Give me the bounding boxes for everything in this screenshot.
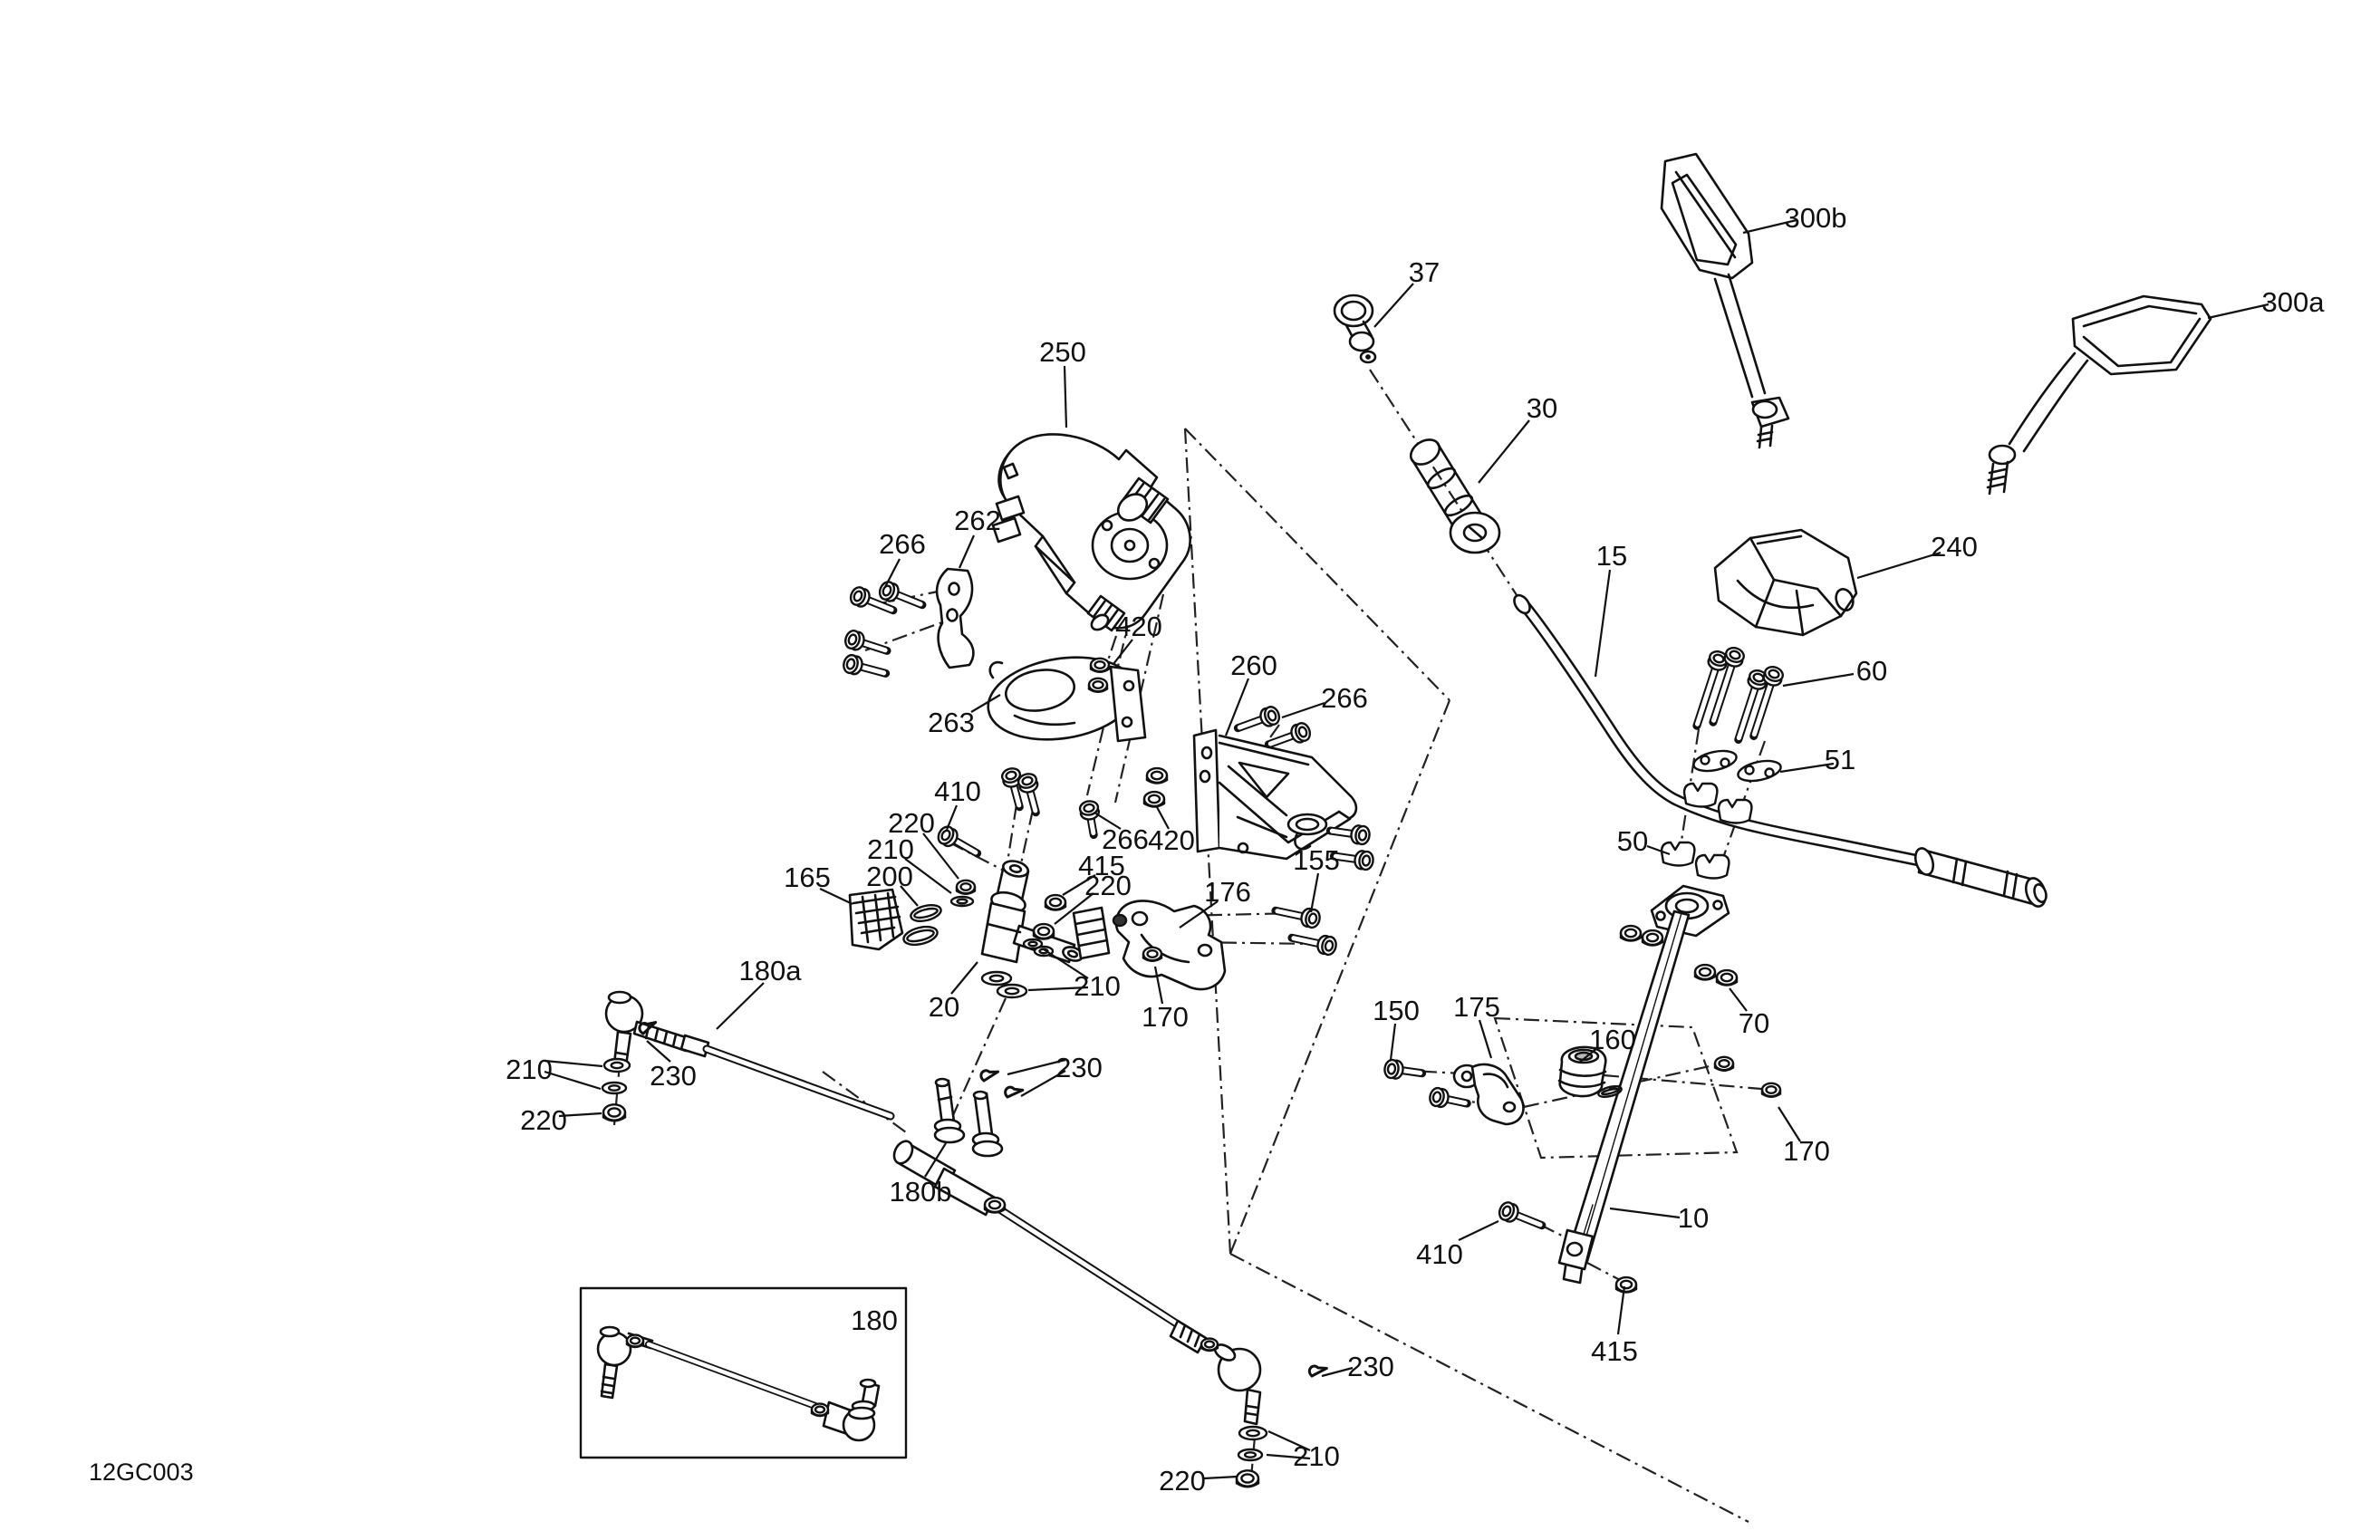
part-support-plate-263[interactable]: [982, 648, 1145, 750]
part-mirror-right-300a[interactable]: [1988, 296, 2211, 494]
leader-line-410b: [1459, 1221, 1498, 1240]
part-steering-support-260[interactable]: [1194, 730, 1356, 859]
steering-diagram-svg: 300b300a37301524060515025026626226342026…: [0, 0, 2380, 1540]
part-power-steering-unit-250[interactable]: [985, 420, 1190, 632]
washer-210[interactable]: [602, 1083, 626, 1093]
nut-rod[interactable]: [1201, 1339, 1218, 1351]
leader-line-220d: [1204, 1477, 1238, 1478]
part-mirror-left-300b[interactable]: [1662, 154, 1788, 448]
leader-line-210c: [544, 1061, 602, 1066]
callout-60[interactable]: 60: [1856, 655, 1887, 687]
part-clamp-half-176[interactable]: [1074, 908, 1109, 958]
callout-176[interactable]: 176: [1204, 876, 1251, 908]
bolt[interactable]: [1238, 705, 1281, 728]
nut-220[interactable]: [603, 1104, 625, 1121]
leader-line-410a: [947, 805, 957, 830]
leader-line-37: [1374, 284, 1413, 327]
callout-10[interactable]: 10: [1678, 1202, 1709, 1234]
leader-line-415b: [1618, 1286, 1624, 1334]
nut-420[interactable]: [1147, 768, 1167, 783]
nut-420[interactable]: [1091, 659, 1109, 672]
callout-263[interactable]: 263: [928, 707, 975, 738]
nut-70[interactable]: [1621, 926, 1641, 940]
parts-diagram-page: 300b300a37301524060515025026626226342026…: [0, 0, 2380, 1540]
nut-rod[interactable]: [627, 1335, 643, 1347]
callout-170a[interactable]: 170: [1142, 1001, 1189, 1033]
callout-210c[interactable]: 210: [506, 1054, 553, 1085]
nut-170[interactable]: [1762, 1083, 1780, 1097]
callout-410a[interactable]: 410: [934, 775, 981, 807]
callout-230b[interactable]: 230: [650, 1060, 697, 1092]
callout-175[interactable]: 175: [1453, 991, 1500, 1023]
callout-220c[interactable]: 220: [520, 1104, 567, 1136]
part-handlebar-grip-30[interactable]: [1406, 435, 1499, 553]
bolt[interactable]: [1292, 935, 1337, 957]
callout-250[interactable]: 250: [1039, 336, 1086, 368]
bolt[interactable]: [843, 629, 887, 651]
bolt[interactable]: [1334, 850, 1373, 871]
callout-37[interactable]: 37: [1409, 256, 1440, 288]
nut-small[interactable]: [1113, 915, 1126, 926]
leader-line-300a: [2208, 304, 2269, 318]
callout-260[interactable]: 260: [1230, 650, 1277, 681]
leader-line-155: [1311, 873, 1318, 912]
callout-266b[interactable]: 266: [1321, 682, 1368, 714]
diagram-code: 12GC003: [89, 1458, 194, 1486]
o-ring-200[interactable]: [910, 902, 943, 924]
callout-200[interactable]: 200: [866, 861, 913, 892]
washer-210[interactable]: [1239, 1427, 1267, 1439]
nut-415[interactable]: [1616, 1277, 1636, 1292]
callout-420b[interactable]: 420: [1148, 824, 1195, 856]
nut-415[interactable]: [1045, 895, 1065, 910]
callout-262[interactable]: 262: [954, 505, 1001, 536]
callout-410b[interactable]: 410: [1416, 1238, 1463, 1270]
leader-line-180a: [717, 983, 764, 1029]
callout-50[interactable]: 50: [1617, 825, 1648, 857]
callout-170b[interactable]: 170: [1783, 1135, 1830, 1167]
nut-420[interactable]: [1144, 792, 1164, 806]
part-support-bracket-262[interactable]: [937, 569, 973, 668]
part-steering-clamp-176[interactable]: [1116, 900, 1225, 989]
nut-420[interactable]: [1089, 679, 1107, 692]
nut-70[interactable]: [1715, 1057, 1733, 1071]
callout-30[interactable]: 30: [1527, 392, 1557, 424]
part-bar-end-cap-37[interactable]: [1335, 295, 1375, 362]
callout-230c[interactable]: 230: [1347, 1351, 1394, 1382]
leader-line-60: [1783, 674, 1854, 686]
part-handlebar-cover-240[interactable]: [1715, 530, 1856, 635]
bolt[interactable]: [1330, 824, 1370, 845]
callout-210b[interactable]: 210: [1074, 970, 1121, 1002]
callout-180[interactable]: 180: [851, 1304, 898, 1336]
washer-210[interactable]: [997, 985, 1026, 997]
handlebar-clamp-50[interactable]: [1696, 855, 1729, 879]
nut-70[interactable]: [1695, 965, 1715, 979]
callout-266c[interactable]: 266: [1102, 823, 1149, 855]
nut-70[interactable]: [1643, 930, 1662, 945]
bolt[interactable]: [1383, 1059, 1421, 1080]
washer-210[interactable]: [604, 1059, 630, 1072]
leader-line-420a: [1113, 640, 1132, 664]
bolt[interactable]: [1079, 800, 1100, 835]
leader-line-175: [1479, 1020, 1491, 1058]
nut-rod[interactable]: [812, 1404, 828, 1416]
callout-70[interactable]: 70: [1739, 1007, 1769, 1039]
leader-line-10: [1610, 1208, 1680, 1218]
part-steering-column-plate[interactable]: [1652, 886, 1729, 936]
callout-420a[interactable]: 420: [1115, 611, 1162, 642]
part-handlebar-15[interactable]: [1511, 592, 2048, 909]
callout-51[interactable]: 51: [1825, 744, 1855, 775]
leader-line-15: [1595, 570, 1610, 677]
bolt[interactable]: [936, 824, 978, 853]
leader-line-150: [1391, 1024, 1395, 1060]
bolt[interactable]: [1497, 1200, 1542, 1226]
callout-415b[interactable]: 415: [1591, 1335, 1638, 1367]
callout-230a[interactable]: 230: [1055, 1052, 1103, 1083]
handlebar-clamp-50[interactable]: [1719, 800, 1751, 823]
callout-210d[interactable]: 210: [1293, 1440, 1340, 1472]
o-ring-200[interactable]: [901, 924, 939, 948]
washer-210[interactable]: [1238, 1449, 1262, 1460]
bolt[interactable]: [877, 580, 922, 605]
nut-170[interactable]: [1143, 948, 1161, 961]
cotter-pin-230[interactable]: [979, 1066, 999, 1081]
part-tie-rod-180a[interactable]: [606, 992, 891, 1116]
part-switch-block-165[interactable]: [850, 890, 902, 949]
leader-line-20: [951, 962, 978, 994]
leader-line-210c: [544, 1072, 601, 1089]
bolt[interactable]: [1276, 908, 1321, 929]
leader-line-250: [1065, 366, 1066, 428]
callout-300a[interactable]: 300a: [2262, 286, 2326, 318]
cotter-pin-230[interactable]: [1005, 1084, 1024, 1097]
callout-266a[interactable]: 266: [879, 528, 926, 560]
callout-20[interactable]: 20: [929, 991, 959, 1023]
part-tie-rod-end-180b-lower[interactable]: [1171, 1321, 1260, 1424]
nut-220[interactable]: [1034, 924, 1054, 938]
callout-220b[interactable]: 220: [1084, 870, 1132, 901]
leader-line-30: [1479, 420, 1529, 483]
callout-180a[interactable]: 180a: [739, 955, 803, 987]
callout-300b[interactable]: 300b: [1785, 202, 1847, 234]
callout-160[interactable]: 160: [1589, 1024, 1636, 1055]
bolt[interactable]: [842, 653, 885, 675]
clamp-washer-plate-51[interactable]: [1736, 757, 1782, 784]
callout-165[interactable]: 165: [784, 861, 831, 893]
callout-155[interactable]: 155: [1293, 844, 1340, 876]
nut-linkage[interactable]: [985, 1198, 1005, 1212]
nut-220[interactable]: [1237, 1470, 1258, 1487]
washer-210[interactable]: [982, 972, 1011, 985]
callout-180b[interactable]: 180b: [890, 1176, 952, 1208]
leader-line-266b: [1282, 703, 1325, 717]
nut-70[interactable]: [1717, 970, 1737, 985]
leader-line-262: [959, 535, 974, 568]
callout-15[interactable]: 15: [1596, 540, 1627, 572]
nut-220[interactable]: [957, 881, 975, 894]
callout-220d[interactable]: 220: [1159, 1465, 1206, 1497]
leader-line-240: [1857, 553, 1941, 578]
clamp-washer-plate-51[interactable]: [1691, 747, 1738, 775]
callout-240[interactable]: 240: [1931, 531, 1978, 563]
washer-210[interactable]: [951, 897, 973, 906]
bolt[interactable]: [1429, 1087, 1468, 1109]
handlebar-clamp-50[interactable]: [1684, 784, 1717, 807]
callout-150[interactable]: 150: [1373, 995, 1420, 1026]
